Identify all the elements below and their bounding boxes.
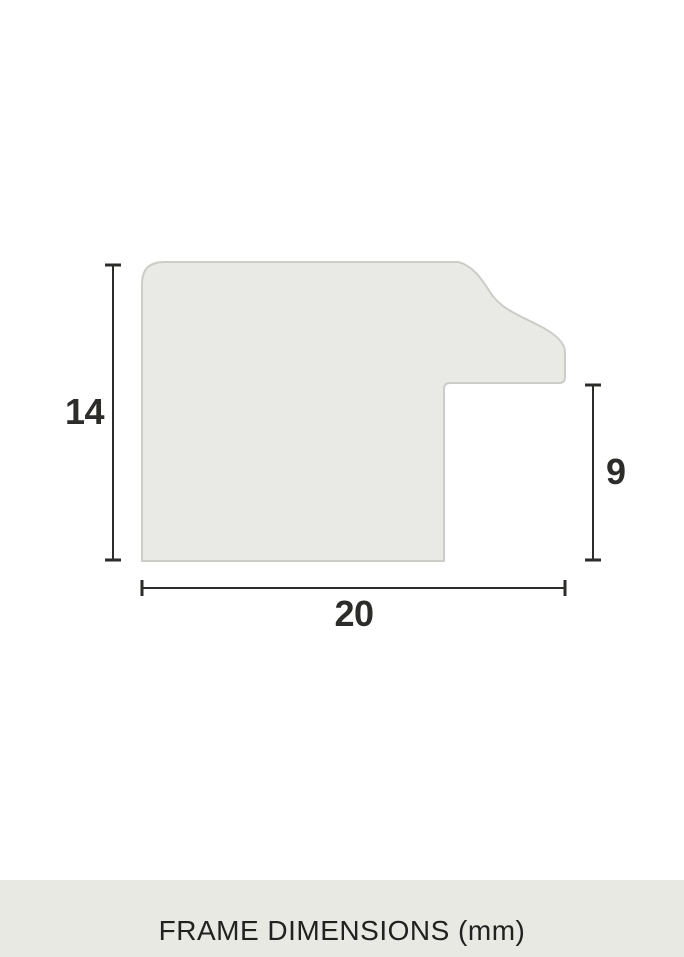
rabbet-dimension-value: 9 — [606, 451, 626, 493]
footer-title: FRAME DIMENSIONS (mm) — [159, 915, 526, 947]
height-dimension-value: 14 — [65, 391, 104, 433]
frame-dimension-diagram: 14 9 20 — [0, 0, 684, 957]
frame-profile-shape — [142, 262, 565, 561]
footer-bar: FRAME DIMENSIONS (mm) — [0, 880, 684, 957]
rabbet-dimension-line — [585, 385, 601, 560]
height-dimension-line — [105, 265, 121, 560]
width-dimension-value: 20 — [334, 593, 373, 635]
